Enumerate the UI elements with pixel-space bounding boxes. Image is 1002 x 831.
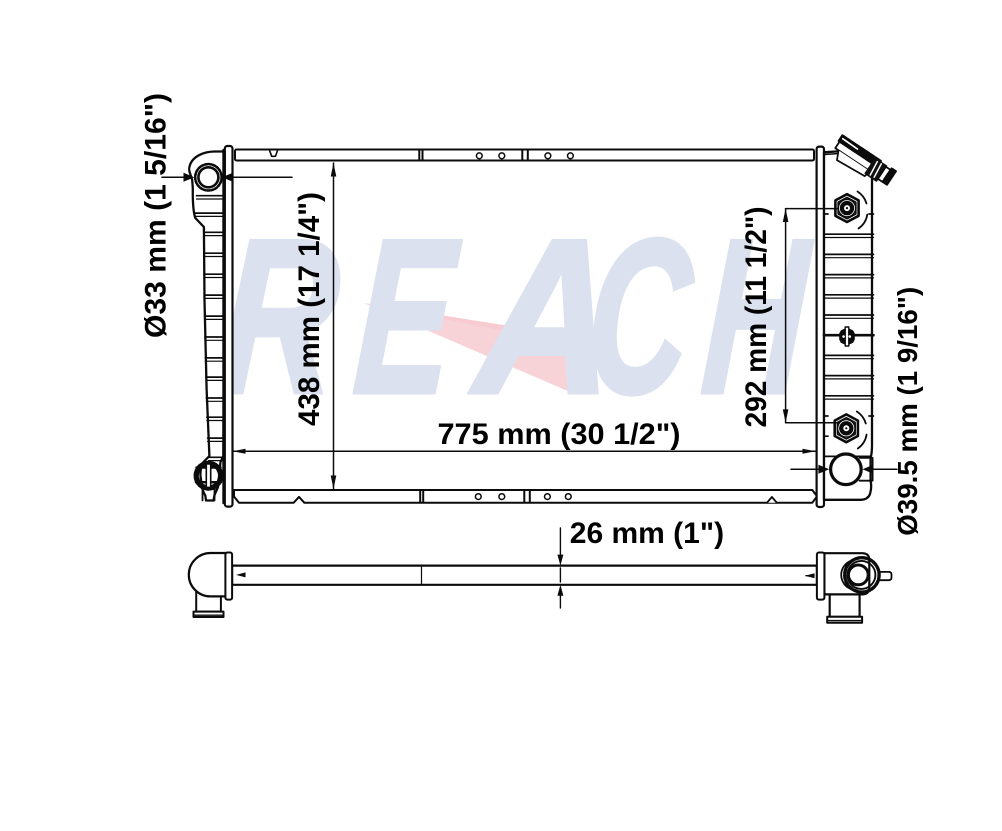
svg-text:26 mm (1"): 26 mm (1") xyxy=(570,517,724,550)
svg-text:E: E xyxy=(349,195,465,439)
svg-text:Ø33 mm (1 5/16"): Ø33 mm (1 5/16") xyxy=(140,93,173,338)
svg-text:Ø39.5 mm (1 9/16"): Ø39.5 mm (1 9/16") xyxy=(892,287,923,536)
svg-text:292 mm (11 1/2"): 292 mm (11 1/2") xyxy=(740,207,773,428)
svg-text:438 mm (17 1/4"): 438 mm (17 1/4") xyxy=(293,192,326,426)
svg-text:C: C xyxy=(581,195,700,439)
svg-text:775 mm (30 1/2"): 775 mm (30 1/2") xyxy=(438,418,681,451)
